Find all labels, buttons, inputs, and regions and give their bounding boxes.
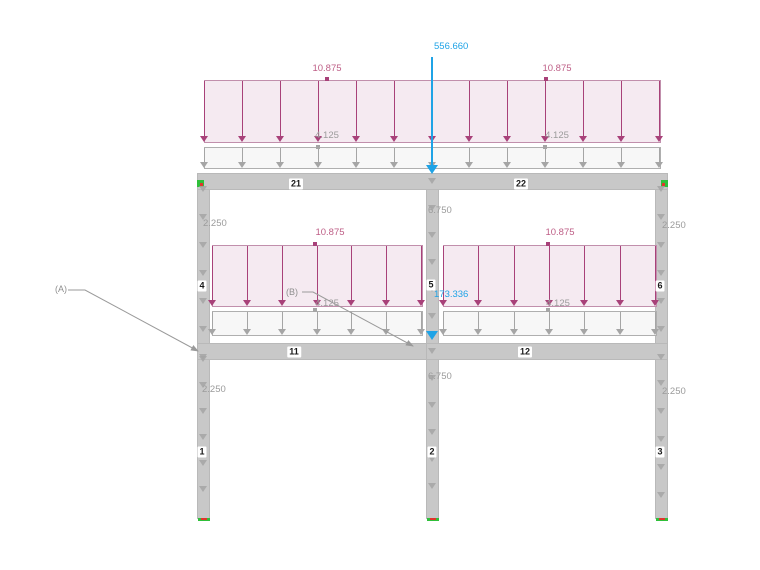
load-arrow [382,312,391,335]
load-value-gray: 4.125 [546,299,570,309]
column-load-triangle [428,483,436,489]
column-load-triangle [199,460,207,466]
load-position-dot [316,145,320,149]
load-arrow [390,148,399,168]
column-load-triangle [657,408,665,414]
load-arrow [382,246,391,306]
column-load-triangle [199,434,207,440]
column-load-triangle [199,242,207,248]
column-load-triangle [428,232,436,238]
point-load-top-arrowhead [426,165,438,174]
column-load-triangle [428,402,436,408]
load-arrow [465,81,474,142]
column-load-triangle [657,270,665,276]
load-arrow [545,246,554,306]
load-arrow [439,312,448,335]
load-arrow [417,312,426,335]
load-arrow [352,81,361,142]
column-load-triangle [657,464,665,470]
load-arrow [503,81,512,142]
load-arrow [474,312,483,335]
column-load-triangle [428,375,436,381]
column-load-triangle [657,214,665,220]
member-label-col-4[interactable]: 4 [197,281,206,292]
load-value-pink: 10.875 [545,228,574,238]
member-label-col-5[interactable]: 5 [426,280,435,291]
load-arrow [313,312,322,335]
load-arrow [208,246,217,306]
point-load-top-arrow[interactable] [431,57,433,165]
load-arrow [314,148,323,168]
support-marker-dot [659,518,665,520]
column-load-triangle [199,382,207,388]
distributed-load-band-mid-left-gray[interactable] [212,311,423,336]
load-arrow [655,148,664,168]
column-load-triangle [657,354,665,360]
load-arrow [616,312,625,335]
column-load-triangle [657,186,665,192]
column-load-triangle [657,242,665,248]
load-value-pink: 10.875 [542,64,571,74]
load-arrow [545,312,554,335]
load-arrow [276,148,285,168]
load-arrow [238,148,247,168]
load-arrow [347,246,356,306]
load-arrow [474,246,483,306]
column-load-value: 2.250 [662,387,686,397]
member-label-col-3[interactable]: 3 [655,447,664,458]
member-label-beam-21[interactable]: 21 [289,179,303,190]
column-load-triangle [428,313,436,319]
load-arrow [200,148,209,168]
column-load-triangle [199,356,207,362]
load-arrow [465,148,474,168]
column-load-triangle [657,298,665,304]
column-load-triangle [428,348,436,354]
column-load-triangle [657,436,665,442]
point-load-top-value: 556.660 [434,42,468,52]
load-arrow [580,246,589,306]
column-load-triangle [199,186,207,192]
load-position-dot [543,145,547,149]
load-arrow [243,246,252,306]
point-load-mid-arrowhead[interactable] [426,331,438,340]
member-label-col-6[interactable]: 6 [655,281,664,292]
load-arrow [503,148,512,168]
load-arrow [579,148,588,168]
column-load-triangle [428,429,436,435]
load-arrow [579,81,588,142]
load-arrow [580,312,589,335]
load-value-gray: 4.125 [545,131,569,141]
load-arrow [616,246,625,306]
column-load-triangle [657,380,665,386]
member-label-col-1[interactable]: 1 [197,447,206,458]
column-load-triangle [199,270,207,276]
load-arrow [200,81,209,142]
load-arrow [208,312,217,335]
load-arrow [617,81,626,142]
load-arrow [278,312,287,335]
annotation-b-label: (B) [286,287,298,297]
load-arrow [352,148,361,168]
load-arrow [243,312,252,335]
column-load-triangle [199,298,207,304]
column-load-triangle [199,214,207,220]
member-label-beam-11[interactable]: 11 [287,347,301,358]
load-arrow [510,312,519,335]
column-load-value: 2.250 [662,221,686,231]
load-arrow [276,81,285,142]
support-marker-dot [430,518,436,520]
column-load-triangle [199,408,207,414]
distributed-load-band-mid-right-gray[interactable] [443,311,657,336]
column-load-triangle [657,492,665,498]
load-arrow [278,246,287,306]
load-value-gray: 4.125 [315,299,339,309]
load-arrow [390,81,399,142]
model-viewport[interactable]: 10.875 10.875 4.125 4.125 10.875 10.875 … [0,0,760,570]
column-load-triangle [199,486,207,492]
load-value-pink: 10.875 [315,228,344,238]
column-load-value: 2.250 [203,219,227,229]
load-arrow [655,81,664,142]
member-label-beam-22[interactable]: 22 [514,179,528,190]
load-position-dot [325,77,329,81]
load-position-dot [546,242,550,246]
load-arrow [313,246,322,306]
column-load-triangle [199,326,207,332]
annotation-a-label: (A) [55,284,67,294]
load-arrow [510,246,519,306]
support-marker-dot [201,518,207,520]
beam-mid-right[interactable] [426,343,668,360]
column-load-triangle [428,178,436,184]
load-arrow [617,148,626,168]
member-label-col-2[interactable]: 2 [427,447,436,458]
load-position-dot [313,242,317,246]
load-arrow [238,81,247,142]
column-load-triangle [428,205,436,211]
load-value-pink: 10.875 [312,64,341,74]
beam-mid-left[interactable] [197,343,439,360]
load-position-dot [544,77,548,81]
member-label-beam-12[interactable]: 12 [518,347,532,358]
load-arrow [541,148,550,168]
column-load-triangle [428,259,436,265]
load-value-gray: 4.125 [315,131,339,141]
column-load-triangle [657,326,665,332]
load-arrow [651,246,660,306]
load-arrow [417,246,426,306]
load-arrow [347,312,356,335]
point-load-mid-value: 173.336 [434,290,468,300]
